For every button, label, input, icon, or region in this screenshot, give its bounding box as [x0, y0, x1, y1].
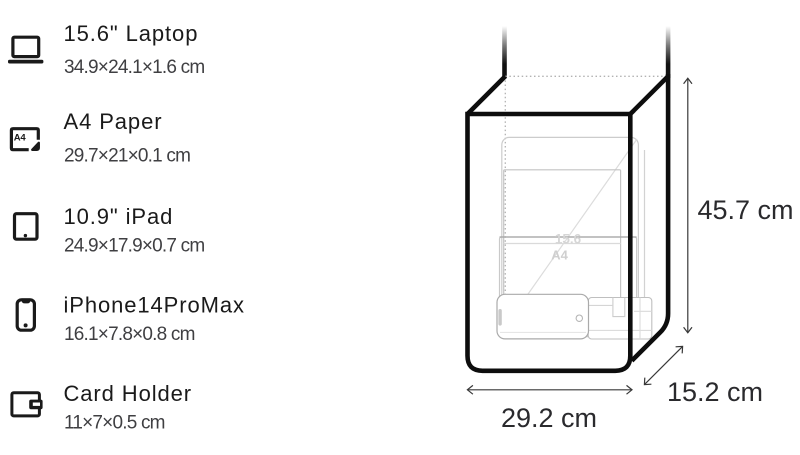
svg-text:15.2 cm: 15.2 cm	[667, 377, 763, 407]
svg-text:45.7 cm: 45.7 cm	[698, 195, 794, 225]
svg-text:A4: A4	[14, 132, 27, 143]
svg-text:A4 Paper: A4 Paper	[64, 109, 163, 134]
svg-text:iPhone14ProMax: iPhone14ProMax	[64, 293, 245, 318]
svg-text:29.7×21×0.1 cm: 29.7×21×0.1 cm	[64, 146, 190, 167]
svg-text:Card Holder: Card Holder	[64, 381, 193, 406]
svg-text:15.6" Laptop: 15.6" Laptop	[64, 21, 199, 46]
svg-text:A4: A4	[551, 248, 568, 263]
svg-text:11×7×0.5 cm: 11×7×0.5 cm	[64, 413, 165, 434]
svg-text:29.2 cm: 29.2 cm	[501, 403, 597, 433]
svg-text:34.9×24.1×1.6 cm: 34.9×24.1×1.6 cm	[64, 57, 204, 78]
svg-text:10.9" iPad: 10.9" iPad	[64, 204, 174, 229]
svg-text:16.1×7.8×0.8 cm: 16.1×7.8×0.8 cm	[64, 324, 195, 345]
svg-text:24.9×17.9×0.7 cm: 24.9×17.9×0.7 cm	[64, 236, 204, 257]
svg-text:15.6: 15.6	[555, 232, 582, 247]
